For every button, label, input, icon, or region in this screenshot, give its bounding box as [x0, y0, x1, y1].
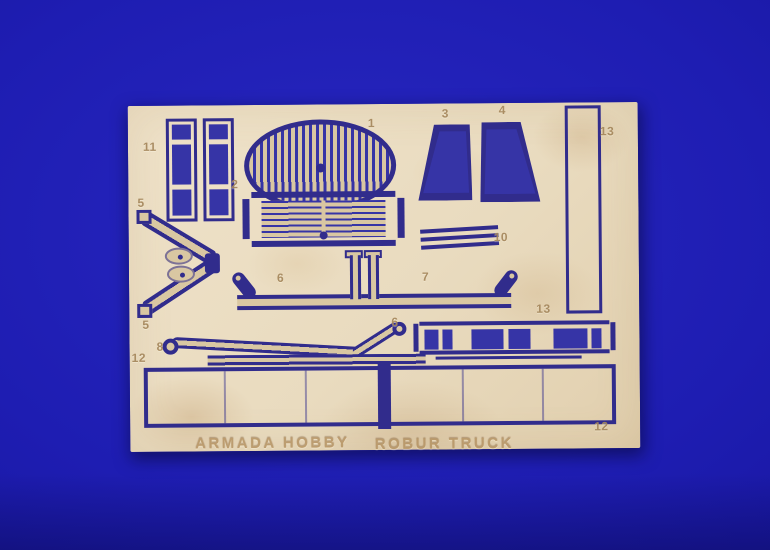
part-number-label: 7 [422, 270, 429, 284]
part-number-label: 4 [499, 103, 506, 117]
etched-brass-fret: ARMADA HOBBY ROBUR TRUCK 115213413106765… [128, 102, 641, 452]
part-number-label: 13 [536, 302, 550, 316]
part-number-label: 8 [156, 340, 163, 354]
part-number-label: 6 [277, 271, 284, 285]
photo-background: ARMADA HOBBY ROBUR TRUCK 115213413106765… [0, 0, 770, 550]
part-number-label: 12 [132, 351, 146, 365]
part-number-label: 2 [231, 177, 238, 191]
part-number-label: 10 [494, 230, 508, 244]
part-number-label: 11 [143, 140, 157, 154]
part-number-label: 5 [142, 318, 149, 332]
part-number-label: 13 [600, 124, 614, 138]
part-number-label: 5 [137, 196, 144, 210]
part-number-label: 12 [594, 419, 608, 433]
part-number-label: 6 [391, 315, 398, 329]
part-labels: 1152134131067658121312 [128, 102, 641, 452]
part-number-label: 1 [368, 116, 375, 130]
part-number-label: 3 [442, 106, 449, 120]
